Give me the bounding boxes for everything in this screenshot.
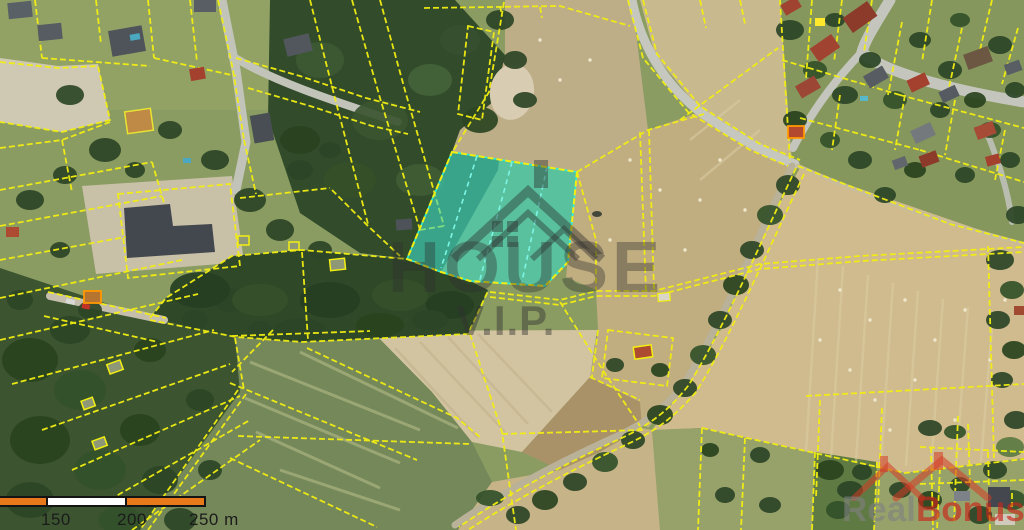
orange-outlined-building [84,291,101,303]
scale-label-150: 150 [41,510,71,530]
scale-segment [125,498,204,505]
map-scale-bar [0,496,206,507]
map-viewport[interactable]: HOUSE V.I.P. RealBonus 150 200 250 m [0,0,1024,530]
scale-label-200: 200 [117,510,147,530]
yellow-marker-building [815,18,825,26]
scale-segment [0,498,46,505]
scale-segment [46,498,125,505]
scale-label-250: 250 m [189,510,239,530]
orange-outlined-building [788,126,804,138]
aerial-map-canvas[interactable] [0,0,1024,530]
